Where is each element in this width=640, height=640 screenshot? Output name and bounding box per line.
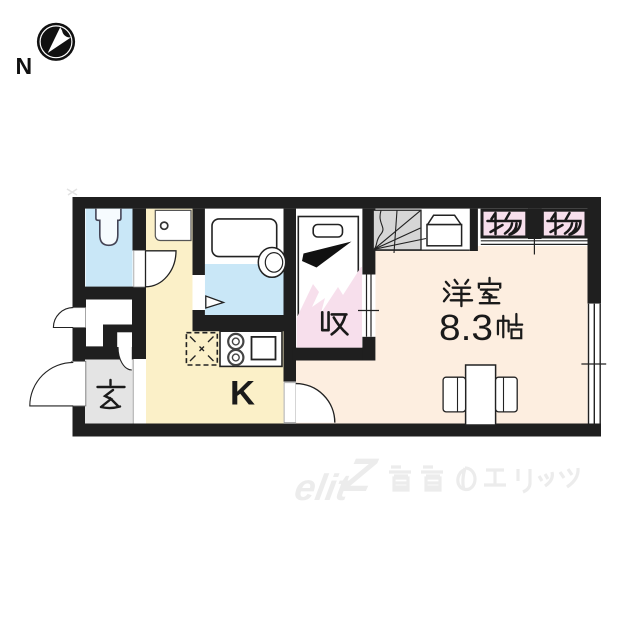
svg-text:K: K — [230, 375, 255, 413]
svg-text:N: N — [16, 53, 33, 79]
svg-text:8.3: 8.3 — [439, 307, 493, 348]
